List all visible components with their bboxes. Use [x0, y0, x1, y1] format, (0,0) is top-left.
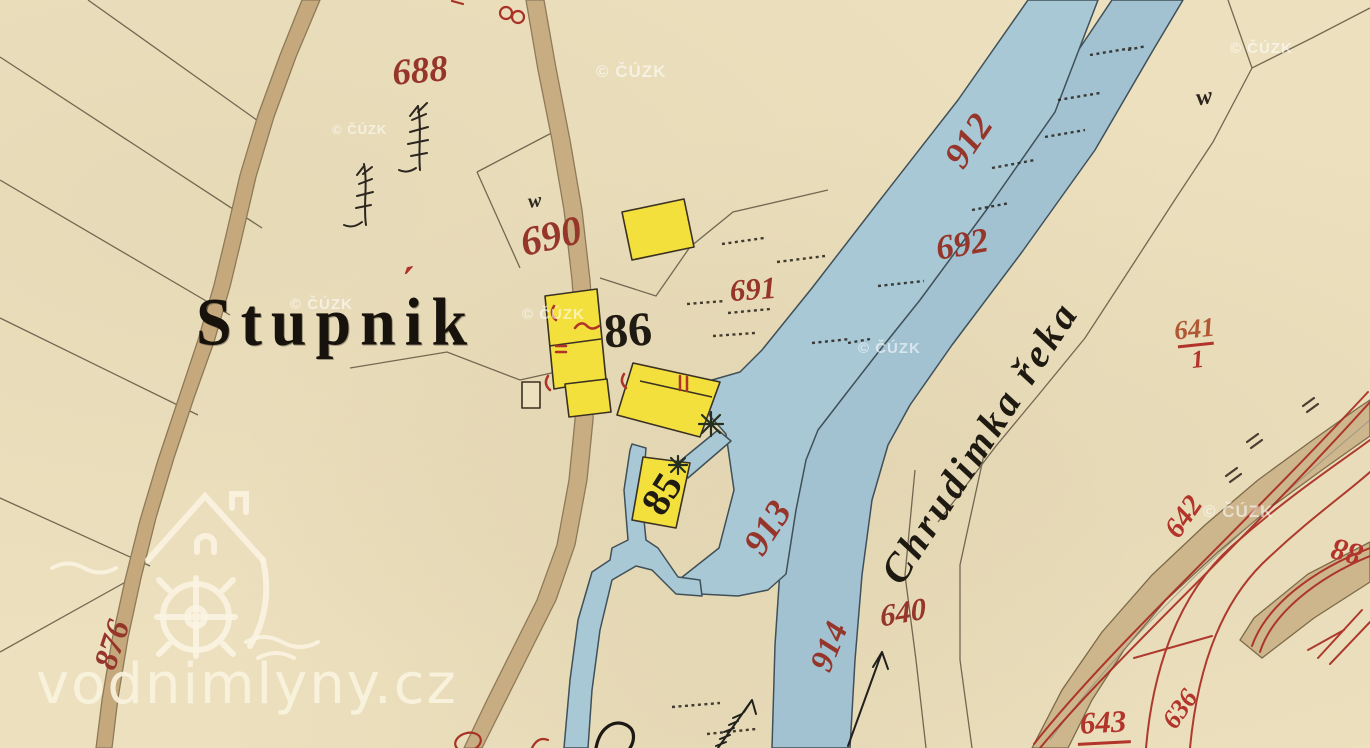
fraction-numerator: 641 — [1173, 314, 1216, 345]
mill-logo-watermark — [52, 494, 318, 658]
vodnimlyny-watermark: vodnimlyny.cz — [36, 652, 458, 717]
parcel-number-692: 692 — [933, 222, 991, 266]
cuzk-watermark: © ČÚZK — [858, 340, 921, 357]
parcel-number-640: 640 — [879, 592, 927, 631]
cuzk-watermark: © ČÚZK — [332, 122, 387, 137]
logo-waves-left — [52, 564, 116, 573]
map-geometry: w w — [0, 0, 1370, 748]
cadastral-map-canvas[interactable]: w w — [0, 0, 1370, 748]
cuzk-watermark: © ČÚZK — [290, 296, 353, 313]
cuzk-watermark: © ČÚZK — [596, 62, 666, 82]
cuzk-watermark: © ČÚZK — [1203, 502, 1273, 522]
logo-wall — [250, 560, 266, 646]
logo-chimney — [232, 494, 246, 512]
house-number-86: 86 — [602, 305, 653, 356]
grass-icon: w — [527, 189, 544, 213]
building-courtyard — [522, 382, 540, 408]
parcel-number-641-1: 641 1 — [1173, 314, 1219, 375]
parcel-number-691: 691 — [729, 272, 778, 306]
grass-icon: w — [1194, 83, 1215, 112]
parcel-number-643: 643 — [1076, 705, 1130, 739]
fraction-denominator: 1 — [1190, 347, 1205, 373]
parcel-number-688: 688 — [391, 50, 450, 92]
cuzk-watermark: © ČÚZK — [1230, 40, 1293, 57]
building-barn — [622, 199, 694, 260]
cuzk-watermark: © ČÚZK — [522, 306, 585, 323]
logo-door — [197, 536, 214, 552]
building-mill — [617, 363, 720, 437]
building-annex — [565, 379, 611, 417]
